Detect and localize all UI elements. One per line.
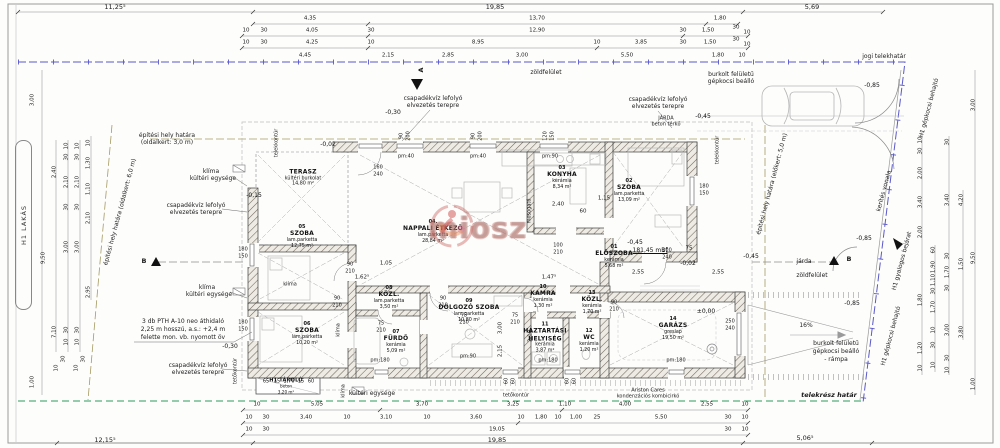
dim-label: 4,25 xyxy=(306,40,318,46)
door-size: 75 xyxy=(378,322,384,327)
dim-label: 9,50 xyxy=(41,252,47,264)
dim-label: 1,70 xyxy=(945,266,951,278)
window-size: 180 xyxy=(238,321,248,326)
dim-label: 1,90 xyxy=(931,261,937,273)
plot-contour-label: telekkontúr xyxy=(716,136,721,165)
window-size: 60 xyxy=(512,378,517,384)
dim-label: 3,00 xyxy=(64,241,70,253)
window-size: 180 xyxy=(238,248,248,253)
room-area: 10,20 m² xyxy=(292,341,323,347)
room-szoba-02: 02 SZOBA lam.parketta 13,09 m² xyxy=(614,178,645,204)
dim-label: 3,85 xyxy=(635,40,647,46)
door-size: 75 xyxy=(512,314,518,319)
dim-label: 12,90 xyxy=(529,28,545,34)
dim-label: 10 xyxy=(344,415,351,421)
dim-label: 3,00 xyxy=(516,53,528,59)
dim-label: 5,06⁵ xyxy=(796,435,813,442)
dim-label: 12,15⁵ xyxy=(94,437,115,444)
dim-label: 10 xyxy=(368,40,375,46)
dim-label: 2,10 xyxy=(64,176,70,188)
dim-label: 2,40 xyxy=(52,166,58,178)
dim-label: 10 xyxy=(594,40,601,46)
room-area: 19,50 m² xyxy=(659,336,688,342)
level-mark: -0,30 xyxy=(385,110,401,116)
dim-label: 3,10 xyxy=(380,415,392,421)
dim-label: 10 xyxy=(744,30,751,36)
dim-label: 30 xyxy=(75,154,81,161)
dim-label: 10 xyxy=(64,143,70,150)
door-size: 90 xyxy=(347,263,353,268)
door-size: 90 xyxy=(611,301,617,306)
room-szoba-05: 05 SZOBA lam.parketta 12,75 m² xyxy=(287,224,318,250)
window-size: 150 xyxy=(699,192,709,197)
dim-label: 3,00 xyxy=(945,324,951,336)
dim-label: 4,45 xyxy=(299,53,311,59)
dim-label: 3,60 xyxy=(470,415,482,421)
room-area: 3,50 m² xyxy=(374,305,405,311)
dim-label: 1,80 xyxy=(712,53,724,59)
dim-label: 30 xyxy=(931,342,937,349)
dim-label: 10 xyxy=(246,427,253,433)
dim-label: 1,50 xyxy=(959,258,965,270)
dim-label: 3,40 xyxy=(300,415,312,421)
envelope-label: (oldalkert: 3,0 m) xyxy=(141,140,193,146)
floor-plan-drawing xyxy=(0,0,1000,448)
room-area: 28,84 m² xyxy=(403,239,463,245)
lintel-note: 2,25 m hosszú, a.s.: +2,4 m xyxy=(141,327,225,333)
dim-label: 30 xyxy=(918,148,924,155)
room-area: 5,09 m² xyxy=(384,349,409,355)
room-wc: 12 WC kerámia 1,20 m² xyxy=(579,328,598,354)
window-size: 60 xyxy=(573,378,578,384)
dim-label: 5,50 xyxy=(655,415,667,421)
paved-area-label: gépkocsi beálló xyxy=(708,79,754,85)
room-kamra: 10 KAMRA kerámia 1,30 m² xyxy=(530,284,556,310)
window-sill: pm:180 xyxy=(666,359,685,364)
level-mark: ±0,00 xyxy=(697,309,715,315)
room-name: SZOBA xyxy=(292,327,323,335)
window-size: 150 xyxy=(551,131,556,141)
dim-label: 10 xyxy=(75,143,81,150)
room-name: KÖZL. xyxy=(582,296,603,304)
room-name: FÜRDŐ xyxy=(384,335,409,343)
level-mark: -0,15 xyxy=(246,193,262,199)
room-area: 8,34 m² xyxy=(547,185,577,191)
dim-label: 30 xyxy=(263,427,270,433)
floor-plan-page: H1 LAKÁS 11,25⁵ 19,85 5,69 4,35 13,70 1,… xyxy=(0,0,1000,448)
window-size: 90 xyxy=(400,133,405,139)
door-size: 210 xyxy=(510,321,520,326)
room-terasz: TERASZ kültéri burkolat 14,80 m² xyxy=(285,168,321,187)
dim-label: 9,50 xyxy=(971,252,977,264)
room-furdo: 07 FÜRDŐ kerámia 5,09 m² xyxy=(384,329,409,355)
room-garazs: 14 GARÁZS greslap 19,50 m² xyxy=(659,316,688,342)
window-size: 200 xyxy=(479,131,484,141)
plot-part-label: telekrész határ xyxy=(801,392,857,399)
level-mark: -0,30 xyxy=(222,344,238,350)
dim-label: 3,25 xyxy=(507,402,519,408)
room-area: 1,70 m² xyxy=(582,310,603,316)
dim-label: 10 xyxy=(254,402,261,408)
room-area: 12,75 m² xyxy=(287,244,318,250)
door-size: 240 xyxy=(662,256,672,261)
room-name: DOLGOZÓ SZOBA xyxy=(438,304,499,312)
dim-label: 30 xyxy=(931,288,937,295)
room-finish: lam.parketta xyxy=(292,335,323,341)
sidewalk-label: beton térkő xyxy=(651,123,680,128)
dim-label: 10 xyxy=(246,415,253,421)
h1-lakas-tag: H1 LAKÁS xyxy=(15,140,32,310)
dim-label: 1,62⁵ xyxy=(355,275,369,281)
dim-label: 60 xyxy=(931,247,937,254)
dim-label: 10 xyxy=(75,339,81,346)
dim-label: 30 xyxy=(733,37,740,43)
section-letter-b: B xyxy=(142,258,147,265)
room-nappali: 04. NAPPALI ÉTKEZŐ lam.parketta 28,84 m² xyxy=(403,219,463,245)
dim-label: 2,10 xyxy=(75,176,81,188)
lintel-note: 3 db PTH A-10 neo áthidaló xyxy=(142,319,224,325)
dim-label: 19,85 xyxy=(488,437,507,444)
room-kozl-08: 08 KÖZL. lam.parketta 3,50 m² xyxy=(374,285,405,311)
dim-label: 10 xyxy=(74,365,80,372)
green-area-label: zöldfelület xyxy=(530,70,561,76)
legal-boundary-label: jogi telekhatár xyxy=(862,54,906,60)
dim-label: 10 xyxy=(555,415,562,421)
window-sill: pm:180 xyxy=(538,359,557,364)
dim-label: 2,00 xyxy=(918,167,924,179)
dim-label: 19,05 xyxy=(489,427,505,433)
dim-label: 30 xyxy=(75,204,81,211)
dim-label: 60 xyxy=(580,209,587,215)
dim-label: 30 xyxy=(680,28,687,34)
dim-label: 10 xyxy=(54,365,60,372)
room-area: 3,20 m² xyxy=(269,389,302,394)
dim-label: 10 xyxy=(918,365,924,372)
room-finish: kerámia xyxy=(530,298,556,304)
dim-label: 2,40 xyxy=(552,202,564,208)
room-kozl-13: 13 KÖZL. kerámia 1,70 m² xyxy=(582,290,603,316)
dim-label: 30 xyxy=(261,28,268,34)
dim-label: 4,20 xyxy=(959,194,965,206)
dim-label: 19,85 xyxy=(486,4,505,11)
door-size: 240 xyxy=(725,327,735,332)
dim-label: 3,00 xyxy=(971,99,977,111)
dim-label: 10 xyxy=(739,53,746,59)
dim-label: 4,00 xyxy=(619,402,631,408)
window-size: 150 xyxy=(238,328,248,333)
window-size: 180 xyxy=(699,185,709,190)
roof-contour-label: tetőkontúr xyxy=(234,358,239,384)
klima-note: klíma xyxy=(283,283,297,288)
dim-label: 10 xyxy=(931,362,937,369)
room-tarolo: H1 TÁROLÓ beton 3,20 m² xyxy=(269,378,302,395)
room-area: 1,20 m² xyxy=(579,348,598,354)
door-size: 100 xyxy=(553,244,563,249)
dim-label: 1,20 xyxy=(918,342,924,354)
dim-label: 8,95 xyxy=(472,40,484,46)
dim-label: 30 xyxy=(733,25,740,31)
rainwater-note: elvezetés terepre xyxy=(170,210,222,216)
room-name: SZOBA xyxy=(614,184,645,192)
dim-label: 2,95 xyxy=(86,286,92,298)
door-size: 90 xyxy=(334,297,340,302)
window-sill: pm:90 xyxy=(460,355,476,360)
dim-label: 2,00 xyxy=(918,226,924,238)
dim-label: 30 xyxy=(61,356,67,363)
dim-label: 1,00 xyxy=(570,415,582,421)
dim-label: 30 xyxy=(680,40,687,46)
dim-label: 30 xyxy=(945,355,951,362)
dim-label: 3,40 xyxy=(918,196,924,208)
door-size: 210 xyxy=(609,308,619,313)
klima-note: kültéri egysége xyxy=(186,292,232,298)
room-area: 13,09 m² xyxy=(614,198,645,204)
room-finish: lam.parketta xyxy=(374,299,405,305)
dim-label: 10 xyxy=(86,140,92,147)
green-area-label: zöldfelület xyxy=(796,273,827,279)
dim-label: 10 xyxy=(518,415,525,421)
room-area: 3,87 m² xyxy=(523,349,566,355)
dim-label: 2,10 xyxy=(86,212,92,224)
dim-label: 1,15 xyxy=(598,196,610,202)
ramp-label: - rámpa xyxy=(824,357,848,363)
dim-label: 5,50 xyxy=(621,53,633,59)
dim-label: 30 xyxy=(725,427,732,433)
dim-label: 1,50 xyxy=(704,40,716,46)
level-mark: -0,45 xyxy=(743,254,759,260)
room-name: GARÁZS xyxy=(659,322,688,330)
window-size: 60 xyxy=(505,378,510,384)
dim-label: 10 xyxy=(742,402,749,408)
door-size: 160 xyxy=(373,166,383,171)
room-name: TERASZ xyxy=(285,168,321,176)
dim-label: 60 xyxy=(308,380,314,385)
dim-label: 1,47⁵ xyxy=(542,275,556,281)
dim-label: 30 xyxy=(725,415,732,421)
klima-note: kültéri egysége xyxy=(190,176,236,182)
rainwater-note: elvezetés terepre xyxy=(407,103,459,109)
door-size: 250 xyxy=(725,320,735,325)
level-mark: -0,45 xyxy=(695,114,711,120)
section-letter-b: B xyxy=(847,256,852,263)
dim-label: 1,10 xyxy=(86,183,92,195)
dim-label: 30 xyxy=(945,285,951,292)
dim-label: 1,70 xyxy=(931,301,937,313)
window-size: 60 xyxy=(566,378,571,384)
dim-label: 1,50 xyxy=(702,28,714,34)
dim-label: 25 xyxy=(594,415,601,421)
room-finish: lam.parketta xyxy=(614,192,645,198)
room-dolgozo: 09 DOLGOZÓ SZOBA lam.parketta 10,80 m² xyxy=(438,298,499,324)
dim-label: 2,15 xyxy=(498,345,504,357)
level-mark: -0,85 xyxy=(864,83,880,89)
room-name: HÁZTARTÁSI xyxy=(523,328,566,336)
dim-label: 10 xyxy=(424,415,431,421)
window-sill: pm:40 xyxy=(398,155,414,160)
door-size: 210 xyxy=(345,270,355,275)
dim-label: 1,00 xyxy=(971,378,977,390)
room-area: 1,30 m² xyxy=(530,304,556,310)
room-name: SZOBA xyxy=(287,230,318,238)
ramp-label: gépkocsi beálló xyxy=(813,349,859,355)
level-mark: -0,85 xyxy=(856,236,872,242)
dim-label: 30 xyxy=(945,253,951,260)
dim-label: 30 xyxy=(75,327,81,334)
dim-label: 10 xyxy=(243,28,250,34)
dim-label: 10 xyxy=(742,427,749,433)
dim-label: 7,10 xyxy=(52,326,58,338)
room-name: KONYHA xyxy=(547,171,577,179)
dim-label: 2,85 xyxy=(442,53,454,59)
dim-label: 3,00 xyxy=(75,241,81,253)
dim-label: 10 xyxy=(64,339,70,346)
dim-label: 30 xyxy=(64,154,70,161)
dim-label: 1,10 xyxy=(559,402,571,408)
dim-label: 10 xyxy=(742,415,749,421)
door-size: 240 xyxy=(373,173,383,178)
dim-label: 30 xyxy=(81,356,87,363)
dim-label: 11,25⁵ xyxy=(104,4,125,11)
window-size: 120 xyxy=(544,131,549,141)
boiler-note: kondenzációs kombicirkó xyxy=(617,395,680,400)
room-area: 10,80 m² xyxy=(438,318,499,324)
dim-label: 30 xyxy=(261,40,268,46)
ramp-label: burkolt felületű xyxy=(813,341,859,347)
door-size: 210 xyxy=(553,251,563,256)
dim-label: 5,05 xyxy=(311,402,323,408)
room-area: 5,68 m² xyxy=(595,264,633,270)
room-szoba-06: 06 SZOBA lam.parketta 10,20 m² xyxy=(292,321,323,347)
dim-label: 65 xyxy=(263,380,269,385)
room-name: WC xyxy=(579,334,598,342)
room-name: KAMRA xyxy=(530,290,556,298)
klima-note: klíma xyxy=(337,323,342,337)
room-finish: kerámia xyxy=(579,342,598,348)
dim-label: 3,70 xyxy=(416,402,428,408)
room-area: 14,80 m² xyxy=(285,182,321,188)
dim-label: 30 xyxy=(64,204,70,211)
dim-label: 2,15 xyxy=(382,53,394,59)
sink-note: mosogató xyxy=(528,199,533,224)
door-size: 210 xyxy=(332,304,342,309)
sidewalk-label: járda xyxy=(796,259,811,265)
dim-label: 1,00 xyxy=(30,376,36,388)
window-size: 200 xyxy=(407,131,412,141)
level-mark: -0,02 xyxy=(680,261,696,267)
dim-label: 30 xyxy=(64,327,70,334)
dim-label: 4,35 xyxy=(304,16,316,22)
klima-note: kültéri egysége xyxy=(349,391,395,397)
benchmark-label: 181,45 mBf xyxy=(633,248,668,254)
room-name: KÖZL. xyxy=(374,291,405,299)
dim-label: 1,30 xyxy=(86,157,92,169)
car xyxy=(762,86,864,126)
dim-label: 3,00 xyxy=(30,94,36,106)
dim-label: 30 xyxy=(263,415,270,421)
dim-label: 1,80 xyxy=(918,294,924,306)
boiler xyxy=(707,344,717,354)
dim-label: 2,55 xyxy=(632,270,644,276)
dim-label: 3,40 xyxy=(945,194,951,206)
room-eloszoba: 01 ELŐSZOBA kerámia 5,68 m² xyxy=(595,244,633,270)
dim-label: 5,69 xyxy=(805,4,819,11)
dim-label: 1,10 xyxy=(931,274,937,286)
roof-contour-label: tetőkontúr xyxy=(503,394,529,399)
window-sill: pm:180 xyxy=(370,359,389,364)
dim-label: 10 xyxy=(945,367,951,374)
dim-label: 1,80 xyxy=(714,16,726,22)
dim-label: 13,70 xyxy=(529,16,545,22)
window-size: 90 xyxy=(472,133,477,139)
room-finish: kerámia xyxy=(384,343,409,349)
window-sill: pm:40 xyxy=(470,155,486,160)
dim-label: 10 xyxy=(744,42,751,48)
room-haztartasi: 11 HÁZTARTÁSI HELYISÉG kerámia 3,87 m² xyxy=(523,321,566,354)
dim-label: 3,80 xyxy=(959,326,965,338)
rainwater-note: elvezetés terepre xyxy=(172,370,224,376)
section-letter-a: A xyxy=(418,67,425,72)
klima-note: klíma xyxy=(342,384,347,398)
room-name: ELŐSZOBA xyxy=(595,250,633,258)
dim-label: 1,80 xyxy=(535,415,547,421)
level-mark: -0,45 xyxy=(627,240,643,246)
dim-label: 10 xyxy=(931,327,937,334)
slope-label: 16% xyxy=(799,323,812,329)
h1-lakas-label: H1 LAKÁS xyxy=(20,205,28,245)
dimension-lines xyxy=(18,12,975,443)
dim-label: 2,55 xyxy=(701,402,713,408)
dim-label: 1,05 xyxy=(380,261,392,267)
dim-label: 30 xyxy=(945,139,951,146)
plot-contour-label: telekkontúr xyxy=(275,129,280,158)
dim-label: 10 xyxy=(243,40,250,46)
room-name: NAPPALI ÉTKEZŐ xyxy=(403,225,463,233)
room-finish: kerámia xyxy=(582,304,603,310)
dim-label: 75 xyxy=(686,246,693,252)
room-finish: lam.parketta xyxy=(287,238,318,244)
rainwater-note: elvezetés terepre xyxy=(632,104,684,110)
lintel-note: felette mon. vb. nyomott öv xyxy=(141,335,225,341)
dim-label: 30 xyxy=(368,28,375,34)
dim-label: 2,55 xyxy=(712,270,724,276)
level-mark: -0,85 xyxy=(844,301,860,307)
dim-label: 4,05 xyxy=(306,28,318,34)
window-size: 150 xyxy=(238,255,248,260)
window-sill: pm:90 xyxy=(542,155,558,160)
level-mark: -0,02 xyxy=(320,142,336,148)
room-konyha: 03 KONYHA kerámia 8,34 m² xyxy=(547,165,577,191)
